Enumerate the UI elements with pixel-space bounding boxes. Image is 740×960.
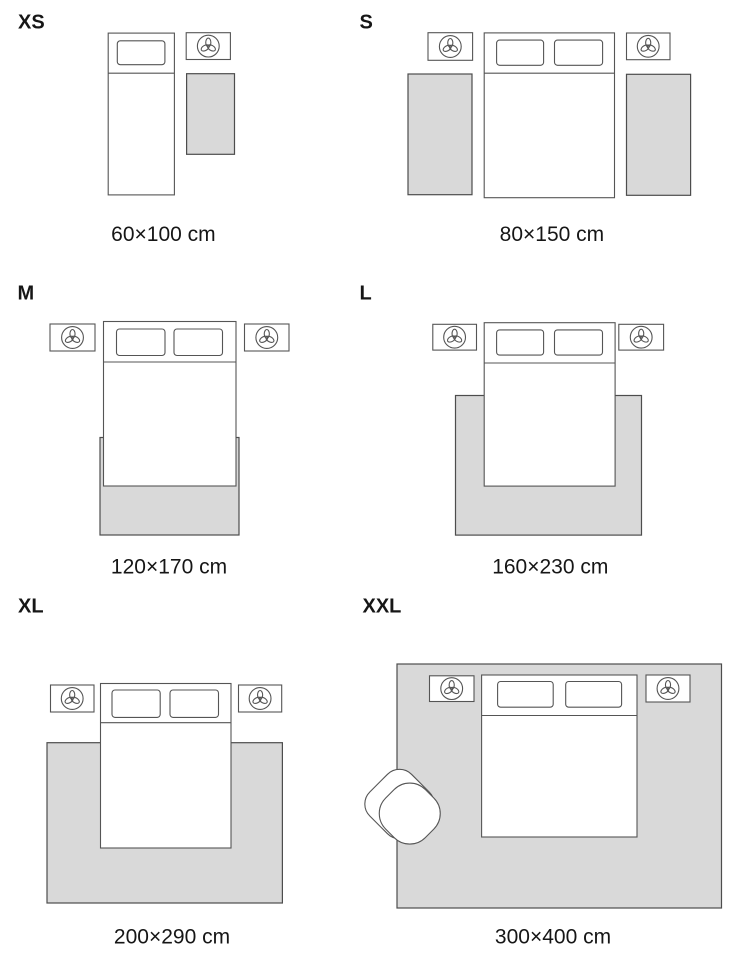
svg-text:80×150 cm: 80×150 cm xyxy=(500,223,605,246)
svg-text:200×290 cm: 200×290 cm xyxy=(114,926,230,949)
svg-text:120×170 cm: 120×170 cm xyxy=(111,556,227,579)
svg-text:XS: XS xyxy=(18,11,45,33)
svg-text:XXL: XXL xyxy=(363,595,402,617)
svg-text:XL: XL xyxy=(18,595,44,617)
svg-text:M: M xyxy=(18,282,35,304)
svg-text:160×230 cm: 160×230 cm xyxy=(492,556,608,579)
svg-text:L: L xyxy=(360,282,372,304)
svg-text:60×100 cm: 60×100 cm xyxy=(111,223,216,246)
svg-text:S: S xyxy=(360,11,373,33)
svg-text:300×400 cm: 300×400 cm xyxy=(495,926,611,949)
